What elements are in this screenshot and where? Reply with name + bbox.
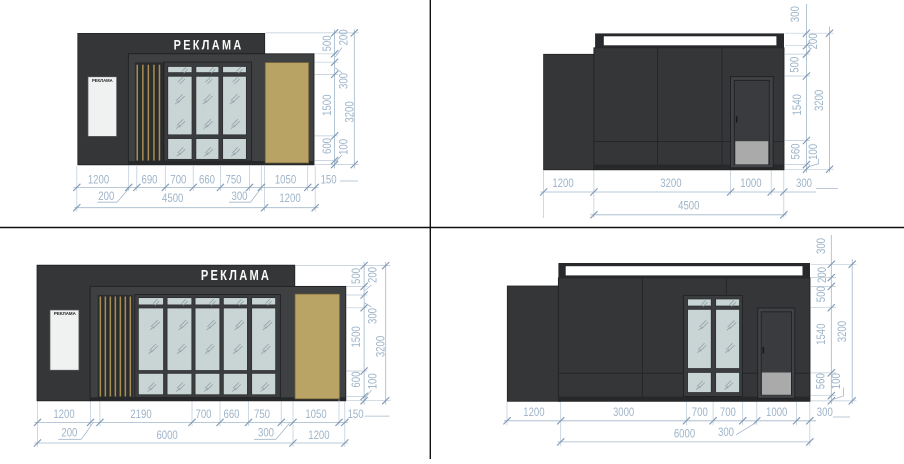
svg-text:700: 700 [196, 408, 212, 421]
svg-text:150: 150 [348, 408, 364, 421]
svg-text:300: 300 [337, 73, 350, 89]
svg-text:РЕКЛАМА: РЕКЛАМА [54, 311, 76, 317]
svg-text:3200: 3200 [836, 321, 849, 342]
svg-text:200: 200 [816, 267, 829, 283]
svg-text:1200: 1200 [523, 406, 544, 419]
svg-text:1200: 1200 [552, 177, 573, 190]
svg-text:1540: 1540 [791, 94, 804, 115]
svg-text:1000: 1000 [740, 177, 761, 190]
svg-text:100: 100 [807, 144, 820, 160]
svg-text:700: 700 [692, 406, 708, 419]
svg-text:1050: 1050 [275, 174, 296, 187]
svg-text:3200: 3200 [813, 90, 826, 111]
svg-text:100: 100 [367, 373, 380, 389]
svg-text:6000: 6000 [156, 429, 177, 442]
svg-text:1200: 1200 [308, 429, 329, 442]
svg-text:750: 750 [226, 174, 242, 187]
svg-text:300: 300 [258, 426, 274, 439]
svg-text:1000: 1000 [766, 406, 787, 419]
svg-text:150: 150 [321, 174, 337, 187]
svg-text:1050: 1050 [305, 408, 326, 421]
svg-text:200: 200 [98, 190, 114, 203]
svg-text:300: 300 [718, 426, 734, 439]
svg-text:100: 100 [337, 139, 350, 155]
svg-text:300: 300 [789, 6, 802, 22]
svg-text:750: 750 [254, 408, 270, 421]
svg-text:1200: 1200 [88, 174, 109, 187]
svg-text:690: 690 [142, 174, 158, 187]
svg-text:1500: 1500 [350, 326, 363, 347]
svg-text:2190: 2190 [130, 408, 151, 421]
svg-text:1200: 1200 [53, 408, 74, 421]
svg-text:3200: 3200 [343, 101, 356, 122]
svg-text:РЕКЛАМА: РЕКЛАМА [92, 78, 113, 83]
svg-text:1200: 1200 [279, 192, 300, 205]
svg-text:100: 100 [830, 373, 843, 389]
svg-text:700: 700 [720, 406, 736, 419]
svg-text:3000: 3000 [613, 406, 634, 419]
svg-text:500: 500 [321, 35, 334, 51]
svg-text:3200: 3200 [374, 336, 387, 357]
svg-text:1540: 1540 [815, 324, 828, 345]
svg-text:РЕКЛАМА: РЕКЛАМА [174, 36, 244, 52]
svg-text:660: 660 [224, 408, 240, 421]
svg-text:200: 200 [337, 29, 350, 45]
svg-text:600: 600 [350, 372, 363, 388]
svg-text:200: 200 [367, 267, 380, 283]
svg-text:3200: 3200 [660, 177, 681, 190]
svg-text:300: 300 [817, 406, 833, 419]
svg-text:700: 700 [170, 174, 186, 187]
svg-text:РЕКЛАМА: РЕКЛАМА [201, 268, 271, 284]
svg-text:500: 500 [350, 268, 363, 284]
svg-text:6000: 6000 [674, 427, 695, 440]
svg-text:1500: 1500 [321, 95, 334, 116]
svg-text:500: 500 [789, 57, 802, 73]
svg-text:560: 560 [814, 373, 827, 389]
svg-text:300: 300 [796, 177, 812, 190]
svg-text:660: 660 [199, 174, 215, 187]
svg-text:500: 500 [815, 286, 828, 302]
svg-text:300: 300 [232, 190, 248, 203]
svg-text:300: 300 [367, 308, 380, 324]
svg-text:300: 300 [815, 238, 828, 254]
svg-text:4500: 4500 [162, 192, 183, 205]
svg-text:4500: 4500 [678, 200, 699, 213]
svg-text:200: 200 [61, 426, 77, 439]
svg-text:200: 200 [807, 33, 820, 49]
svg-text:600: 600 [321, 138, 334, 154]
svg-text:560: 560 [789, 144, 802, 160]
